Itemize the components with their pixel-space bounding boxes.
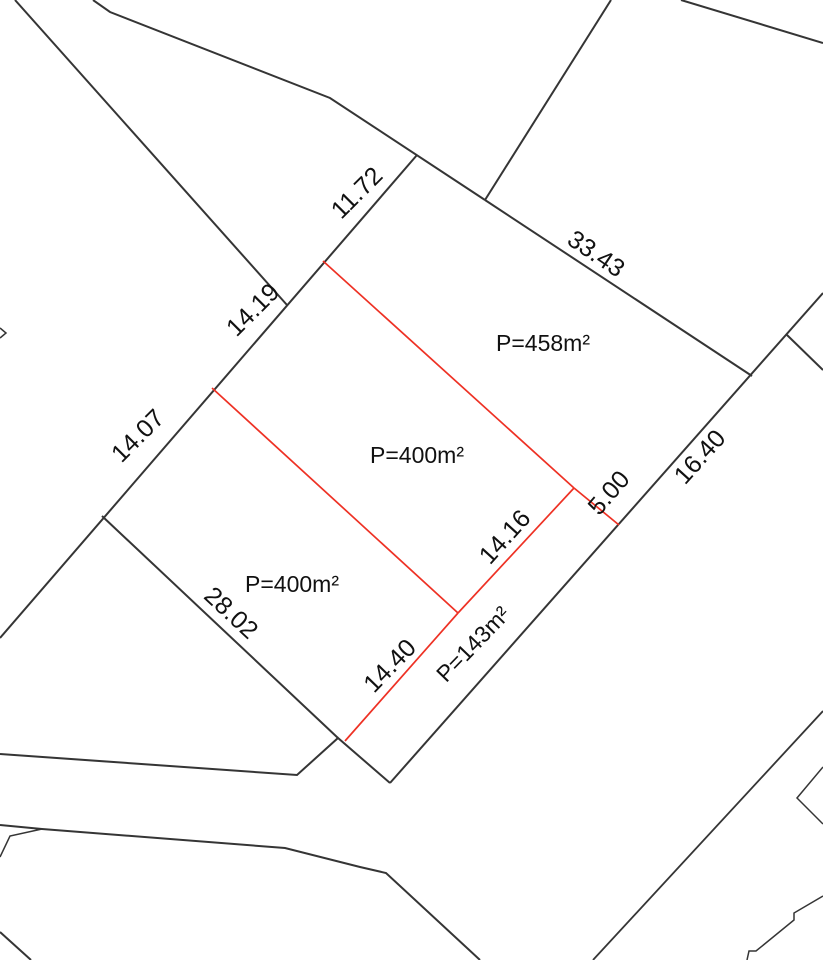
area-label-400-sw: P=400m² <box>245 571 339 597</box>
area-label-400-mid: P=400m² <box>370 442 464 468</box>
edge-28-02-line <box>102 516 338 738</box>
west-edge-14-19-14-07-line <box>0 155 417 638</box>
cadastral-parcel-plan: 11.7233.4314.1914.0716.405.0014.1628.021… <box>0 0 823 960</box>
cadastral-plan-drawing: 11.7233.4314.1914.0716.405.0014.1628.021… <box>0 0 823 960</box>
road-branch-line <box>787 335 823 370</box>
street-north-edge-line <box>0 738 390 783</box>
dim-label-14-16: 14.16 <box>474 504 537 569</box>
dim-label-33-43: 33.43 <box>562 225 630 283</box>
road-edge-16-40-line <box>390 293 823 783</box>
southwest-corner-cut-line <box>0 932 31 960</box>
east-notch-line <box>797 767 823 824</box>
street-south-sliver-line <box>0 829 42 857</box>
area-label-143: P=143m² <box>431 601 515 687</box>
dim-label-14-07: 14.07 <box>106 404 170 468</box>
northeast-spur-line <box>681 0 823 43</box>
dim-label-11-72: 11.72 <box>326 162 389 225</box>
west-edge-mark-line <box>0 328 6 338</box>
north-boundary-line <box>93 0 485 200</box>
southeast-steps-line <box>747 896 823 960</box>
dim-label-5-00: 5.00 <box>582 465 635 520</box>
north-spur-line <box>485 0 611 200</box>
area-label-458: P=458m² <box>496 330 590 356</box>
dim-label-14-19: 14.19 <box>221 278 285 342</box>
street-south-edge-line <box>0 825 480 960</box>
west-spur-line <box>15 0 287 305</box>
southeast-parcel-edge-line <box>593 711 823 960</box>
